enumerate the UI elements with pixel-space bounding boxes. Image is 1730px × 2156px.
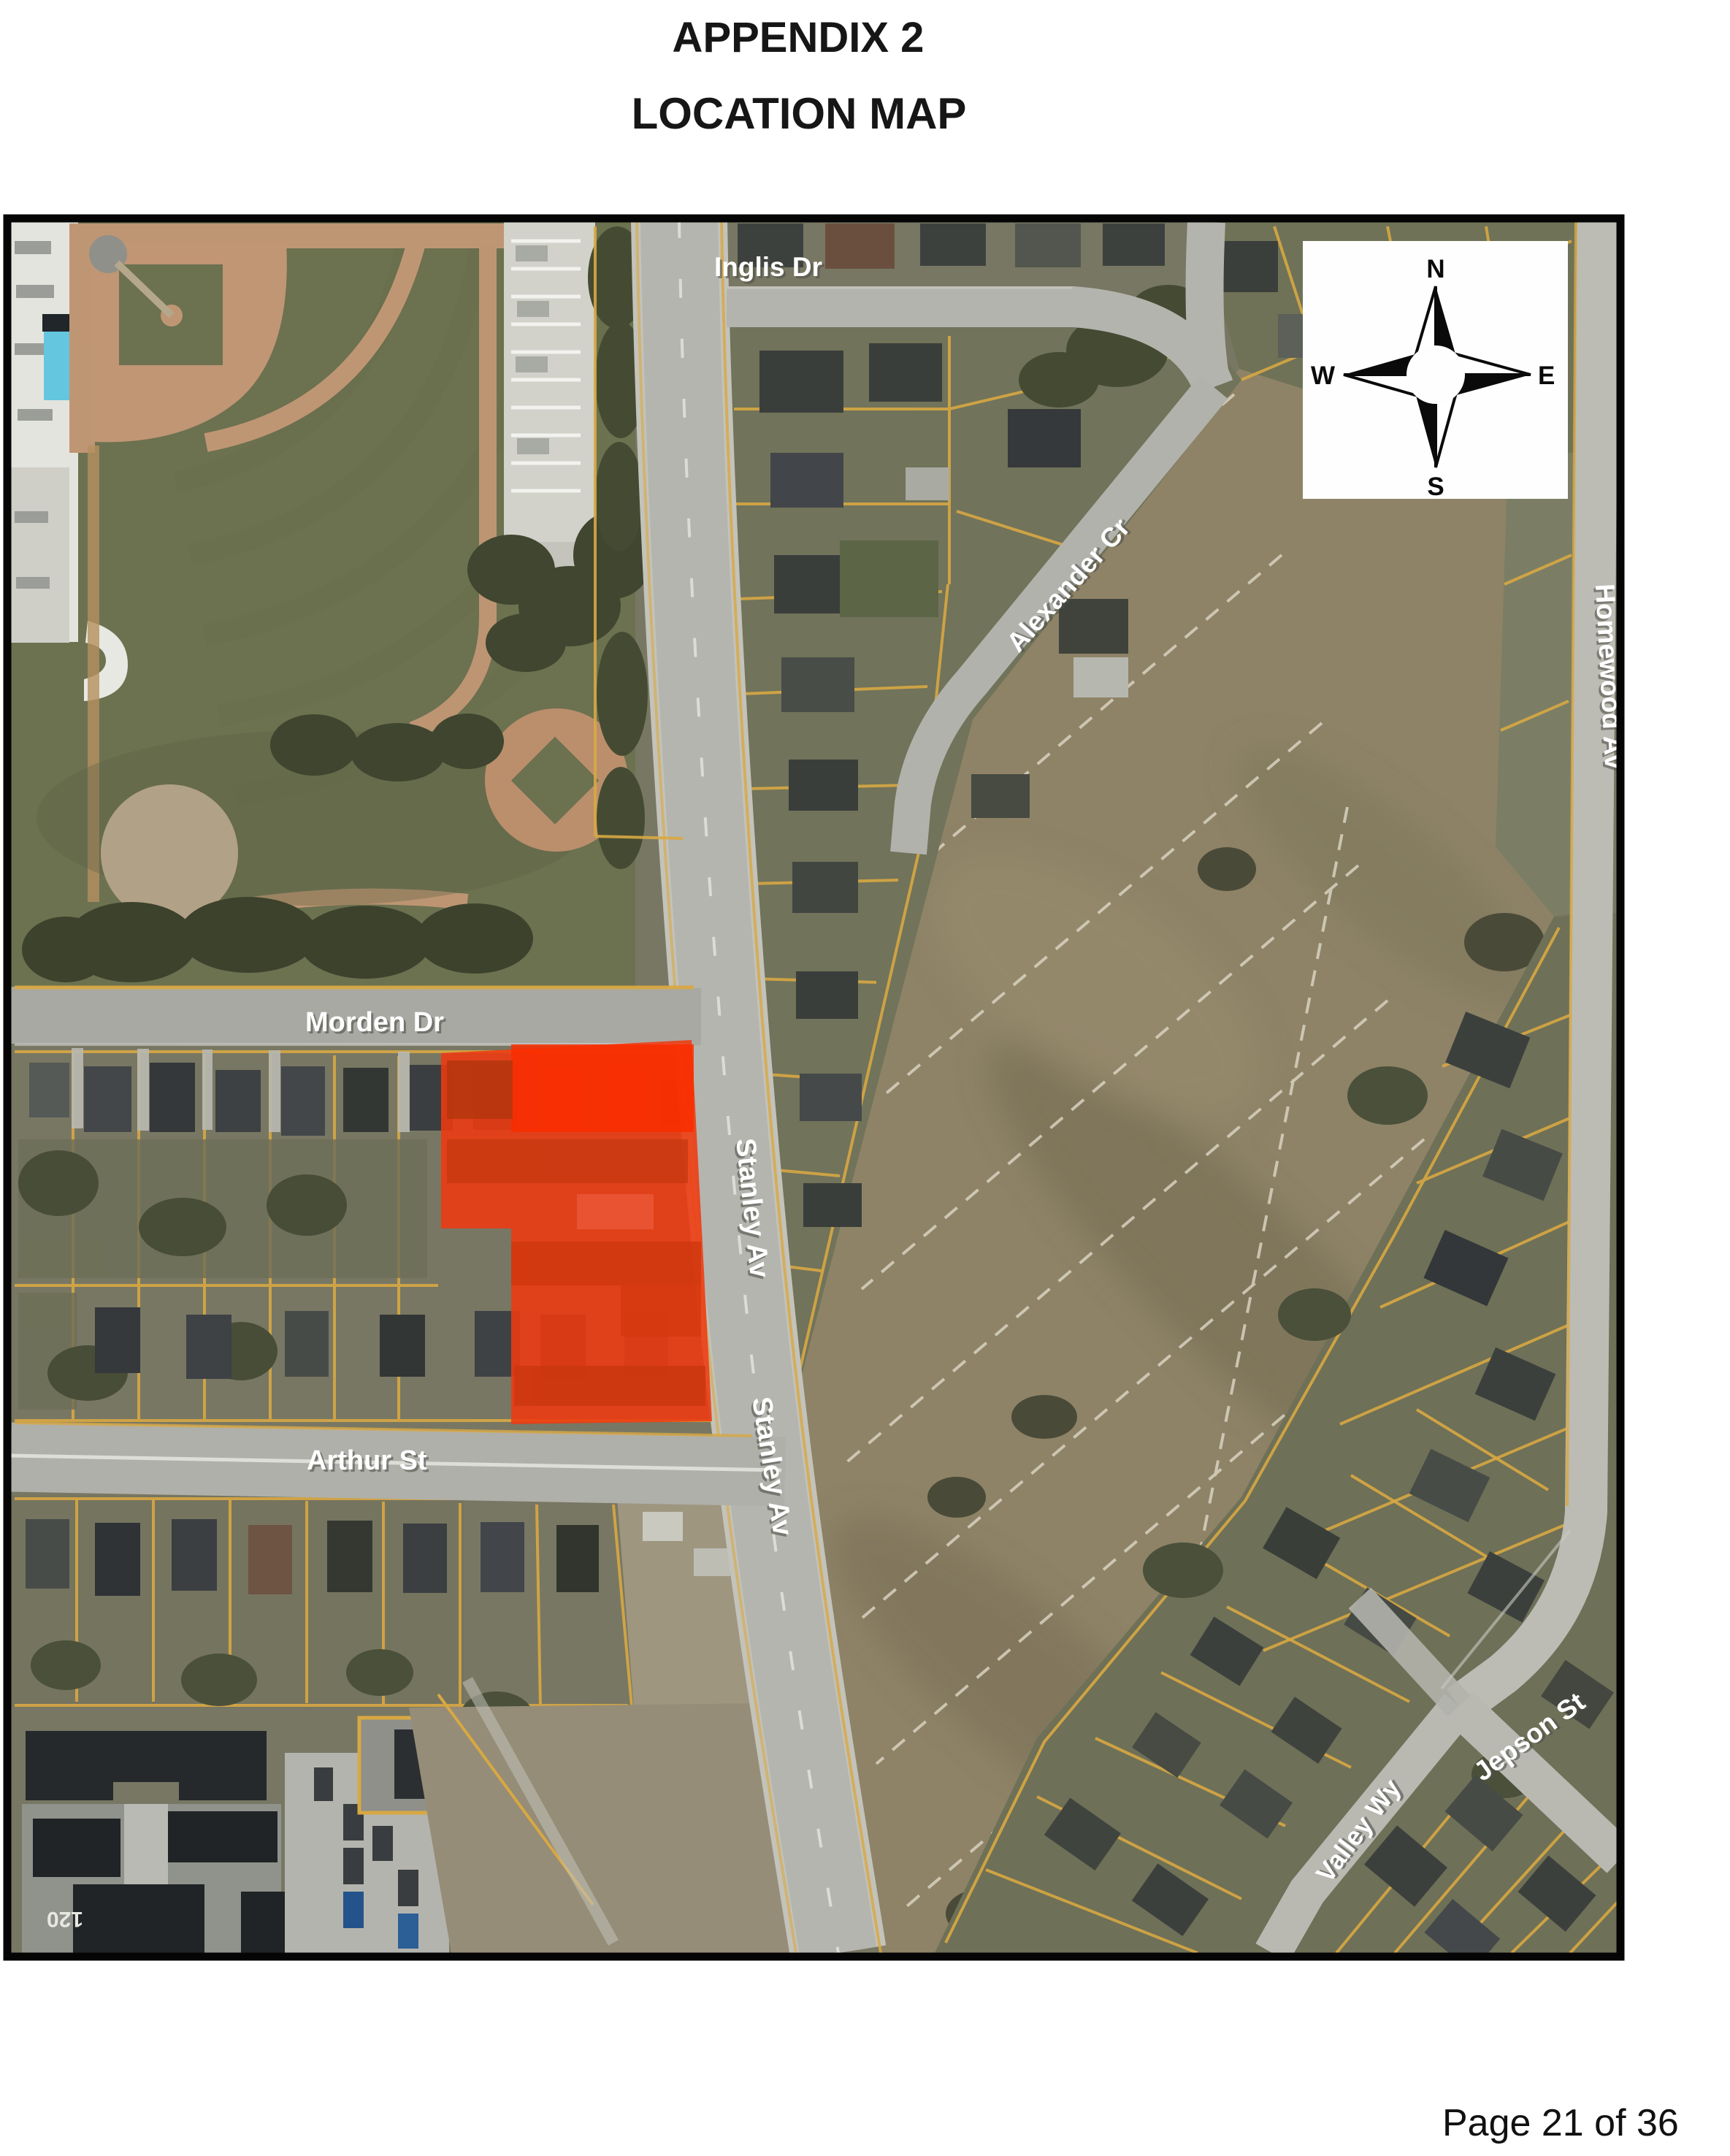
svg-text:Morden Dr: Morden Dr (305, 1007, 444, 1038)
svg-text:120: 120 (47, 1907, 83, 1931)
svg-text:S: S (1427, 473, 1444, 501)
svg-text:Arthur St: Arthur St (307, 1445, 427, 1476)
svg-text:Inglis Dr: Inglis Dr (714, 252, 822, 282)
svg-text:N: N (1426, 255, 1444, 283)
svg-text:E: E (1538, 362, 1555, 390)
svg-text:W: W (1311, 362, 1335, 390)
